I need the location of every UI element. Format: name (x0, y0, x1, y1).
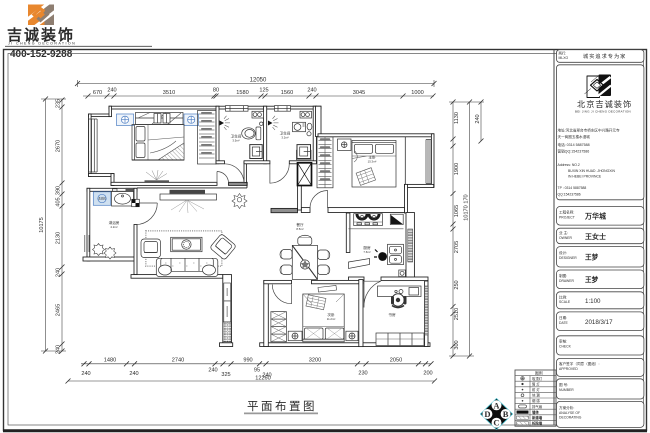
svg-text:墙体: 墙体 (532, 409, 539, 414)
svg-text:240: 240 (129, 371, 138, 377)
svg-text:11.2m²: 11.2m² (327, 317, 336, 321)
svg-text:日期:: 日期: (559, 315, 567, 320)
svg-text:DESIGNER: DESIGNER (559, 256, 577, 260)
svg-text:设计:: 设计: (559, 250, 567, 255)
svg-text:平面布置图: 平面布置图 (247, 400, 317, 413)
svg-text:地 漏: 地 漏 (532, 393, 540, 398)
svg-text:3045: 3045 (353, 90, 365, 96)
svg-text:240: 240 (307, 88, 316, 94)
svg-text:15.3m²: 15.3m² (368, 160, 377, 164)
svg-text:TP : 0314 5887588: TP : 0314 5887588 (558, 186, 587, 190)
svg-text:170: 170 (464, 194, 470, 203)
svg-text:JI CHENG DECORATION: JI CHENG DECORATION (8, 42, 76, 46)
svg-text:1065: 1065 (454, 205, 460, 217)
svg-text:1130: 1130 (454, 112, 460, 124)
svg-text:2510: 2510 (454, 308, 460, 320)
svg-text:240: 240 (208, 368, 217, 374)
svg-text:筒 灯: 筒 灯 (532, 381, 540, 386)
svg-text:240: 240 (475, 114, 481, 123)
svg-text:80: 80 (213, 88, 219, 94)
svg-text:95: 95 (254, 368, 260, 374)
svg-text:235: 235 (56, 99, 62, 108)
svg-text:670: 670 (93, 90, 102, 96)
svg-text:DATE: DATE (559, 321, 569, 325)
svg-text:B: B (503, 409, 509, 419)
svg-text:北京吉诚装饰: 北京吉诚装饰 (577, 99, 632, 109)
svg-text:射 灯: 射 灯 (532, 387, 540, 392)
svg-text:7.6m²: 7.6m² (363, 250, 370, 254)
svg-text:10175: 10175 (39, 217, 45, 233)
svg-text:250: 250 (454, 280, 460, 289)
svg-text:审核:: 审核: (559, 339, 567, 344)
svg-text:405: 405 (56, 197, 62, 206)
svg-text:QQ:154237586: QQ:154237586 (558, 192, 581, 196)
svg-text:990: 990 (243, 357, 252, 363)
svg-text:2705: 2705 (454, 241, 460, 253)
svg-text:PROJECT: PROJECT (559, 215, 575, 219)
svg-text:2670: 2670 (56, 140, 62, 152)
svg-text:C: C (493, 418, 499, 428)
svg-text:3200: 3200 (309, 357, 321, 363)
svg-text:230: 230 (358, 371, 367, 377)
svg-text:王女士: 王女士 (585, 232, 606, 241)
svg-text:电话: 0314 5887588: 电话: 0314 5887588 (558, 142, 590, 147)
svg-text:营销QQ:154237586: 营销QQ:154237586 (558, 148, 590, 153)
svg-text:400-152-9288: 400-152-9288 (10, 49, 73, 60)
svg-text:A: A (493, 400, 500, 410)
svg-text:2018/3/17: 2018/3/17 (585, 319, 613, 326)
svg-text:新建墙: 新建墙 (532, 415, 543, 420)
svg-text:10170: 10170 (464, 205, 470, 221)
svg-text:BEI JING JI CHENG DECORATION: BEI JING JI CHENG DECORATION (575, 110, 631, 114)
svg-text:1000: 1000 (411, 90, 423, 96)
svg-text:万华城: 万华城 (584, 212, 606, 221)
svg-text:1560: 1560 (281, 90, 293, 96)
svg-text:CHECK: CHECK (559, 344, 572, 348)
svg-text:300: 300 (454, 340, 460, 349)
svg-text:客户签字（同意（图纸）:: 客户签字（同意（图纸）: (559, 361, 600, 366)
svg-text:D: D (484, 409, 490, 419)
svg-text:1900: 1900 (454, 163, 460, 175)
svg-text:工程名称:: 工程名称: (559, 210, 574, 215)
svg-text:制图:: 制图: (559, 273, 567, 278)
svg-text:拆除墙: 拆除墙 (532, 421, 543, 426)
svg-text:240: 240 (56, 268, 62, 277)
svg-text:1:100: 1:100 (585, 298, 601, 305)
svg-text:Address: NO.2: Address: NO.2 (558, 163, 580, 167)
svg-text:240: 240 (107, 88, 116, 94)
svg-text:3510: 3510 (163, 90, 175, 96)
svg-text:图例: 图例 (535, 371, 543, 376)
svg-text:1480: 1480 (104, 357, 116, 363)
svg-text:390: 390 (56, 186, 62, 195)
svg-text:比例:: 比例: (559, 294, 567, 299)
svg-text:业 主:: 业 主: (559, 230, 568, 235)
svg-text:3.2m²: 3.2m² (281, 136, 288, 140)
svg-text:2050: 2050 (390, 357, 402, 363)
svg-text:地址:河北省邢台市桥东区中兴路开元寺: 地址:河北省邢台市桥东区中兴路开元寺 (558, 128, 620, 133)
svg-text:240: 240 (56, 345, 62, 354)
svg-text:城实追求专为家: 城实追求专为家 (583, 52, 626, 60)
svg-text:IN HEBEI PROVINCE: IN HEBEI PROVINCE (568, 175, 602, 179)
svg-text:1580: 1580 (236, 90, 248, 96)
svg-text:排气扇: 排气扇 (532, 404, 543, 409)
svg-text:APPROVED: APPROVED (559, 367, 578, 371)
svg-text:洗衣机: 洗衣机 (98, 197, 106, 201)
svg-text:8.5m²: 8.5m² (296, 227, 303, 231)
svg-text:BUXIN XIN HUAD .JHONGXIN: BUXIN XIN HUAD .JHONGXIN (568, 169, 615, 173)
svg-text:4.2m²: 4.2m² (110, 225, 117, 229)
svg-text:烟 感: 烟 感 (532, 398, 540, 403)
svg-text:325: 325 (221, 372, 230, 378)
svg-text:王梦: 王梦 (585, 253, 599, 262)
svg-text:天一商圈五楼水漫城: 天一商圈五楼水漫城 (558, 134, 591, 139)
svg-text:12050: 12050 (250, 78, 267, 84)
svg-text:2740: 2740 (172, 357, 184, 363)
svg-text:书房: 书房 (388, 312, 396, 317)
svg-text:方案分析:: 方案分析: (559, 405, 574, 410)
svg-text:3.5m²: 3.5m² (232, 139, 239, 143)
svg-text:2130: 2130 (56, 232, 62, 244)
svg-text:DECORATING: DECORATING (559, 416, 582, 420)
svg-text:OWNER: OWNER (559, 236, 573, 240)
svg-text:SCALE: SCALE (559, 300, 571, 304)
svg-text:12260: 12260 (255, 376, 271, 382)
svg-text:MLXO: MLXO (559, 56, 569, 60)
svg-text:200: 200 (423, 371, 432, 377)
svg-text:240: 240 (81, 371, 90, 377)
svg-text:2465: 2465 (56, 304, 62, 316)
svg-text:125: 125 (259, 88, 268, 94)
svg-text:NUMBER: NUMBER (559, 388, 574, 392)
svg-text:DRAWER: DRAWER (559, 279, 574, 283)
svg-text:ANALYSE OF: ANALYSE OF (559, 411, 580, 415)
svg-text:王梦: 王梦 (585, 275, 599, 284)
svg-text:图 号:: 图 号: (559, 382, 568, 387)
svg-text:吸顶灯: 吸顶灯 (532, 376, 543, 381)
